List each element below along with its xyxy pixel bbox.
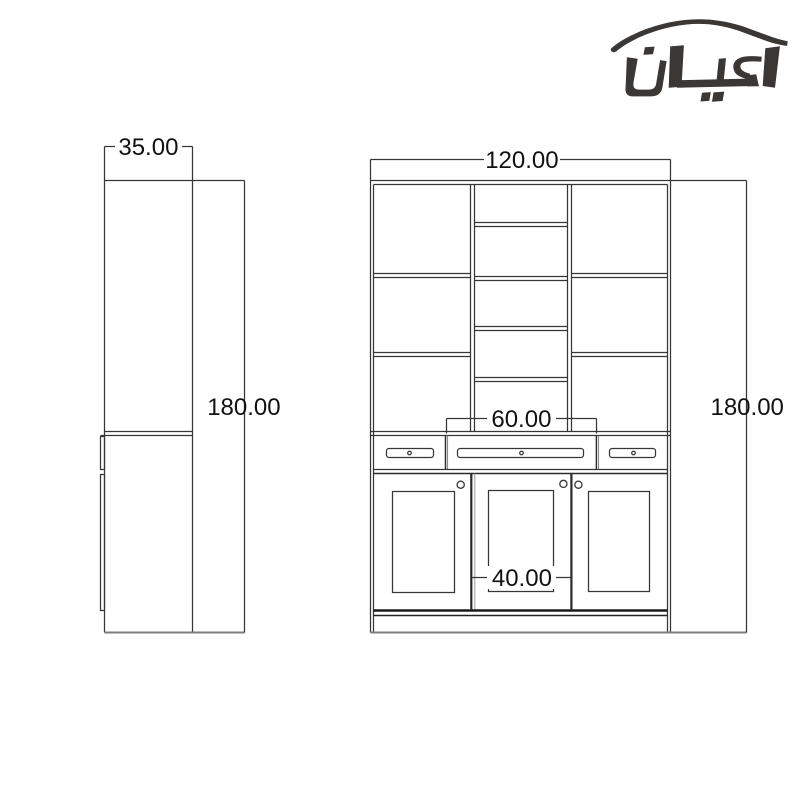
svg-text:180.00: 180.00 <box>710 394 783 421</box>
svg-text:40.00: 40.00 <box>492 565 552 592</box>
svg-text:35.00: 35.00 <box>118 134 178 161</box>
svg-text:180.00: 180.00 <box>207 394 280 421</box>
svg-text:60.00: 60.00 <box>491 406 551 433</box>
svg-text:120.00: 120.00 <box>485 147 558 174</box>
